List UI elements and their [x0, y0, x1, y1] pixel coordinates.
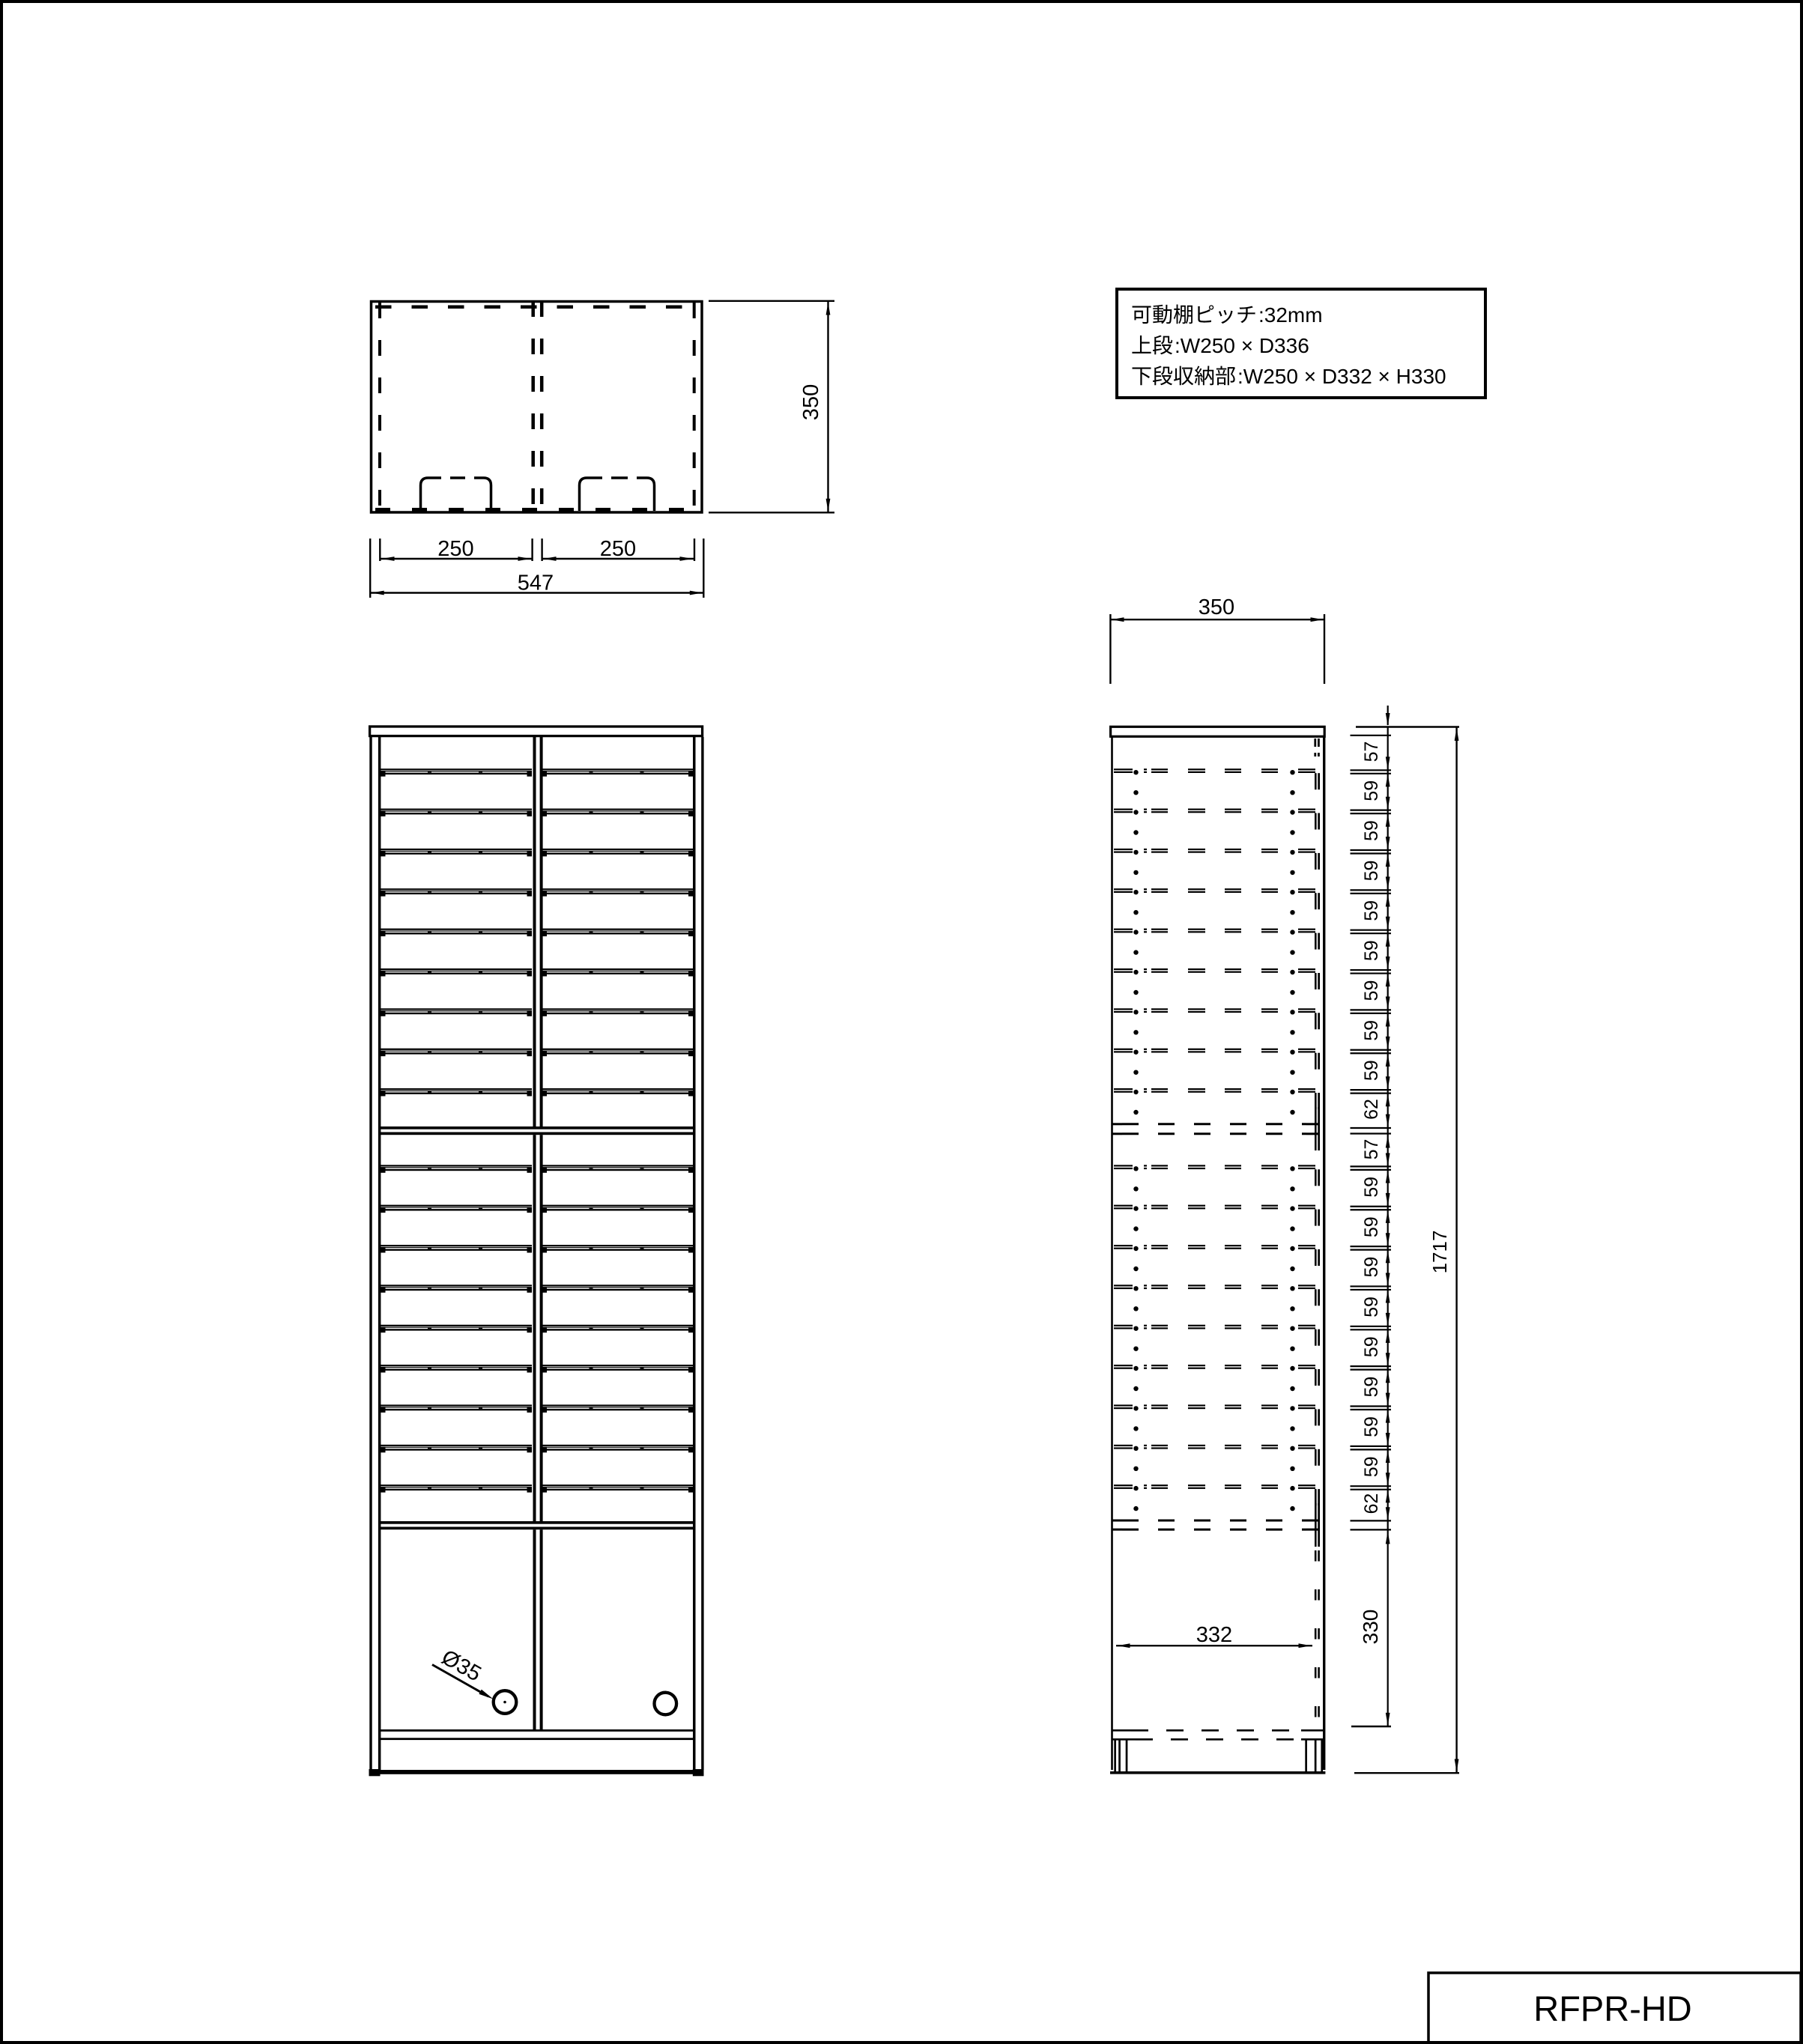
- svg-text:59: 59: [1361, 861, 1382, 882]
- svg-text:59: 59: [1361, 1060, 1382, 1081]
- svg-text:62: 62: [1361, 1099, 1382, 1120]
- svg-text:59: 59: [1361, 1377, 1382, 1398]
- svg-text:547: 547: [518, 571, 554, 595]
- svg-text:59: 59: [1361, 980, 1382, 1001]
- svg-text:350: 350: [799, 384, 823, 420]
- svg-text:59: 59: [1361, 1456, 1382, 1477]
- svg-text:59: 59: [1361, 820, 1382, 841]
- svg-text:59: 59: [1361, 900, 1382, 921]
- svg-text:57: 57: [1361, 1139, 1382, 1160]
- svg-text:57: 57: [1361, 742, 1382, 762]
- svg-text:59: 59: [1361, 1020, 1382, 1041]
- svg-text:250: 250: [437, 537, 473, 561]
- svg-text:59: 59: [1361, 1297, 1382, 1317]
- svg-text:59: 59: [1361, 780, 1382, 801]
- svg-text::W250 × D332 × H330: :W250 × D332 × H330: [1237, 365, 1446, 388]
- svg-text:332: 332: [1196, 1623, 1232, 1647]
- svg-text:1717: 1717: [1428, 1231, 1451, 1274]
- svg-text::W250 × D336: :W250 × D336: [1175, 334, 1309, 357]
- svg-text:59: 59: [1361, 1416, 1382, 1437]
- svg-text:350: 350: [1199, 595, 1234, 619]
- svg-text:250: 250: [600, 537, 636, 561]
- svg-text:62: 62: [1361, 1493, 1382, 1514]
- svg-text:59: 59: [1361, 1257, 1382, 1278]
- svg-text:RFPR-HD: RFPR-HD: [1533, 1989, 1691, 2028]
- svg-text::32mm: :32mm: [1258, 303, 1323, 327]
- svg-text:59: 59: [1361, 1336, 1382, 1357]
- svg-text:330: 330: [1359, 1610, 1382, 1645]
- svg-text:59: 59: [1361, 940, 1382, 961]
- svg-text:59: 59: [1361, 1216, 1382, 1237]
- svg-text:59: 59: [1361, 1177, 1382, 1198]
